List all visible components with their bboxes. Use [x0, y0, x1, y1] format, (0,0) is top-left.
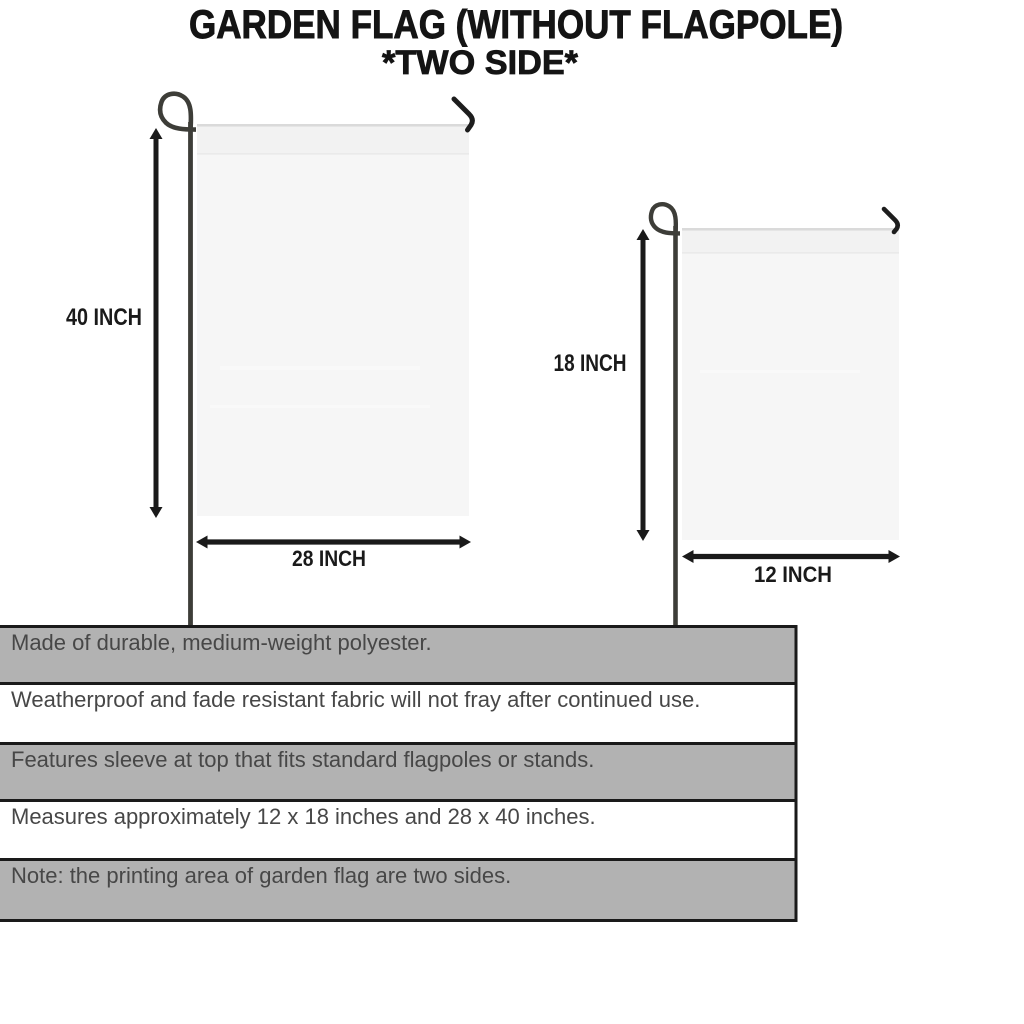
svg-text:18 INCH: 18 INCH	[554, 350, 627, 377]
svg-text:28 INCH: 28 INCH	[292, 546, 366, 571]
svg-text:*TWO SIDE*: *TWO SIDE*	[382, 44, 579, 82]
svg-text:Note: the printing area of gar: Note: the printing area of garden flag a…	[11, 863, 511, 888]
svg-text:Features sleeve at top that fi: Features sleeve at top that fits standar…	[11, 747, 594, 772]
svg-text:Weatherproof and fade resistan: Weatherproof and fade resistant fabric w…	[11, 687, 700, 712]
svg-text:GARDEN FLAG (WITHOUT FLAGPOLE): GARDEN FLAG (WITHOUT FLAGPOLE)	[189, 3, 843, 47]
svg-text:40 INCH: 40 INCH	[66, 304, 142, 331]
svg-text:Made of durable, medium-weight: Made of durable, medium-weight polyester…	[11, 630, 432, 655]
svg-text:Measures approximately 12 x 18: Measures approximately 12 x 18 inches an…	[11, 804, 596, 829]
svg-text:12 INCH: 12 INCH	[754, 562, 832, 587]
